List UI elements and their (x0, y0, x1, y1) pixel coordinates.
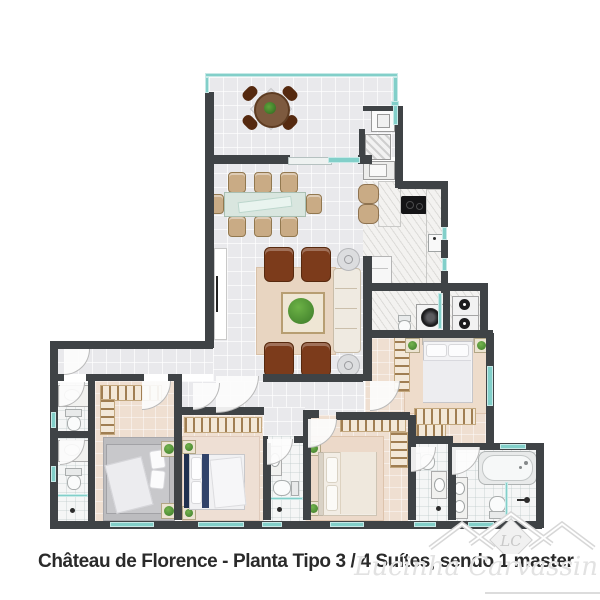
toilet-bowl (67, 416, 81, 431)
dining-chair (306, 194, 322, 214)
dining-chair (228, 216, 246, 237)
gray-bed-pillow (149, 469, 166, 489)
window (330, 522, 364, 527)
wall (205, 164, 214, 348)
dining-chair (228, 172, 246, 193)
nightstand-plant (182, 440, 196, 454)
cream-bed-pillow (326, 485, 338, 511)
dining-chair (280, 216, 298, 237)
toilet-bowl (67, 475, 81, 490)
caption: Château de Florence - Planta Tipo 3 / 4 … (38, 551, 574, 573)
shower-divider (266, 497, 303, 500)
wall (536, 443, 544, 528)
side-table-detail (344, 361, 353, 370)
cooktop (401, 196, 427, 214)
wall (57, 431, 88, 438)
floorplan-page: Château de Florence - Planta Tipo 3 / 4 … (0, 0, 600, 600)
bathtub-basin (482, 455, 533, 481)
entry-door-handle (216, 276, 218, 312)
navy-bed-duvet (210, 456, 247, 508)
window (51, 412, 56, 428)
kitchen-stool (358, 204, 379, 224)
navy-bed-pillow (191, 457, 202, 480)
armchair (301, 247, 331, 282)
armchair (301, 342, 331, 377)
wall (205, 155, 290, 164)
window (500, 444, 526, 449)
window (487, 366, 493, 406)
sofa-cushion-line (335, 288, 357, 289)
wall (263, 374, 363, 382)
toilet-tank (291, 481, 299, 496)
master-bed-pillow (448, 344, 469, 357)
cooktop-burner (416, 203, 423, 210)
sofa (333, 268, 361, 353)
shower-arm (517, 499, 525, 501)
shower-drain (70, 508, 75, 513)
floor-hallway (263, 407, 305, 436)
navy-bed-pillow (191, 481, 202, 504)
shower-drain (436, 506, 441, 511)
wall (372, 283, 488, 291)
shower-drain (277, 507, 282, 512)
wall (480, 291, 488, 330)
wall (441, 271, 448, 293)
shower-divider (505, 482, 508, 520)
window (328, 157, 360, 163)
window (414, 522, 436, 527)
cooktop-burner (406, 201, 414, 209)
window (51, 466, 56, 482)
gray-wardrobe (100, 399, 115, 435)
wall (443, 291, 450, 330)
master-wardrobe (414, 408, 476, 425)
glass-door (438, 293, 442, 329)
armchair (264, 247, 294, 282)
sofa-cushion-line (335, 308, 357, 309)
wall (168, 374, 182, 381)
bathtub-faucet (524, 461, 528, 465)
bathroom-sink (434, 478, 445, 492)
laundry-machine-dot (463, 303, 466, 306)
window-sill (288, 157, 332, 165)
master-bed-duvet (423, 360, 471, 402)
cream-wardrobe (390, 432, 408, 468)
window (110, 522, 154, 527)
dining-chair (254, 172, 272, 193)
wall (50, 341, 213, 349)
coffee-table-plant (288, 298, 314, 324)
navy-wardrobe (184, 417, 262, 433)
wall (336, 412, 410, 420)
window (442, 227, 447, 240)
faucet-dot (433, 237, 436, 240)
wall (88, 381, 95, 521)
elevator-car (377, 114, 390, 128)
wall (441, 240, 448, 258)
balcony-plant (264, 102, 276, 114)
balcony-railing (205, 73, 398, 77)
wall (363, 256, 372, 381)
wall (86, 374, 144, 381)
wall (205, 92, 214, 155)
toilet-bowl (273, 480, 291, 496)
window (198, 522, 244, 527)
side-table-detail (344, 255, 353, 264)
dining-chair (254, 216, 272, 237)
bathtub-drain (519, 466, 522, 469)
kitchen-stool (358, 184, 379, 204)
wall (372, 330, 493, 338)
master-bed-pillow (426, 344, 447, 357)
cream-bed-duvet (340, 452, 376, 514)
cream-bed-pillow (326, 457, 338, 483)
wall (408, 436, 453, 444)
sofa-cushion-line (335, 328, 357, 329)
kitchen-sink-basin (369, 164, 387, 177)
window (262, 522, 282, 527)
window (442, 258, 447, 271)
wall (50, 374, 64, 381)
armchair (264, 342, 294, 377)
balcony-railing (205, 77, 209, 93)
laundry-machine-dot (463, 322, 466, 325)
shower-divider (57, 494, 88, 497)
nightstand-plant (405, 338, 420, 353)
window (468, 522, 494, 527)
dining-chair (280, 172, 298, 193)
wall (174, 381, 182, 520)
floor-plan (0, 0, 600, 600)
wall (441, 181, 448, 227)
window (391, 101, 399, 106)
toilet-tank (489, 511, 506, 519)
navy-bed-runner (202, 454, 209, 508)
